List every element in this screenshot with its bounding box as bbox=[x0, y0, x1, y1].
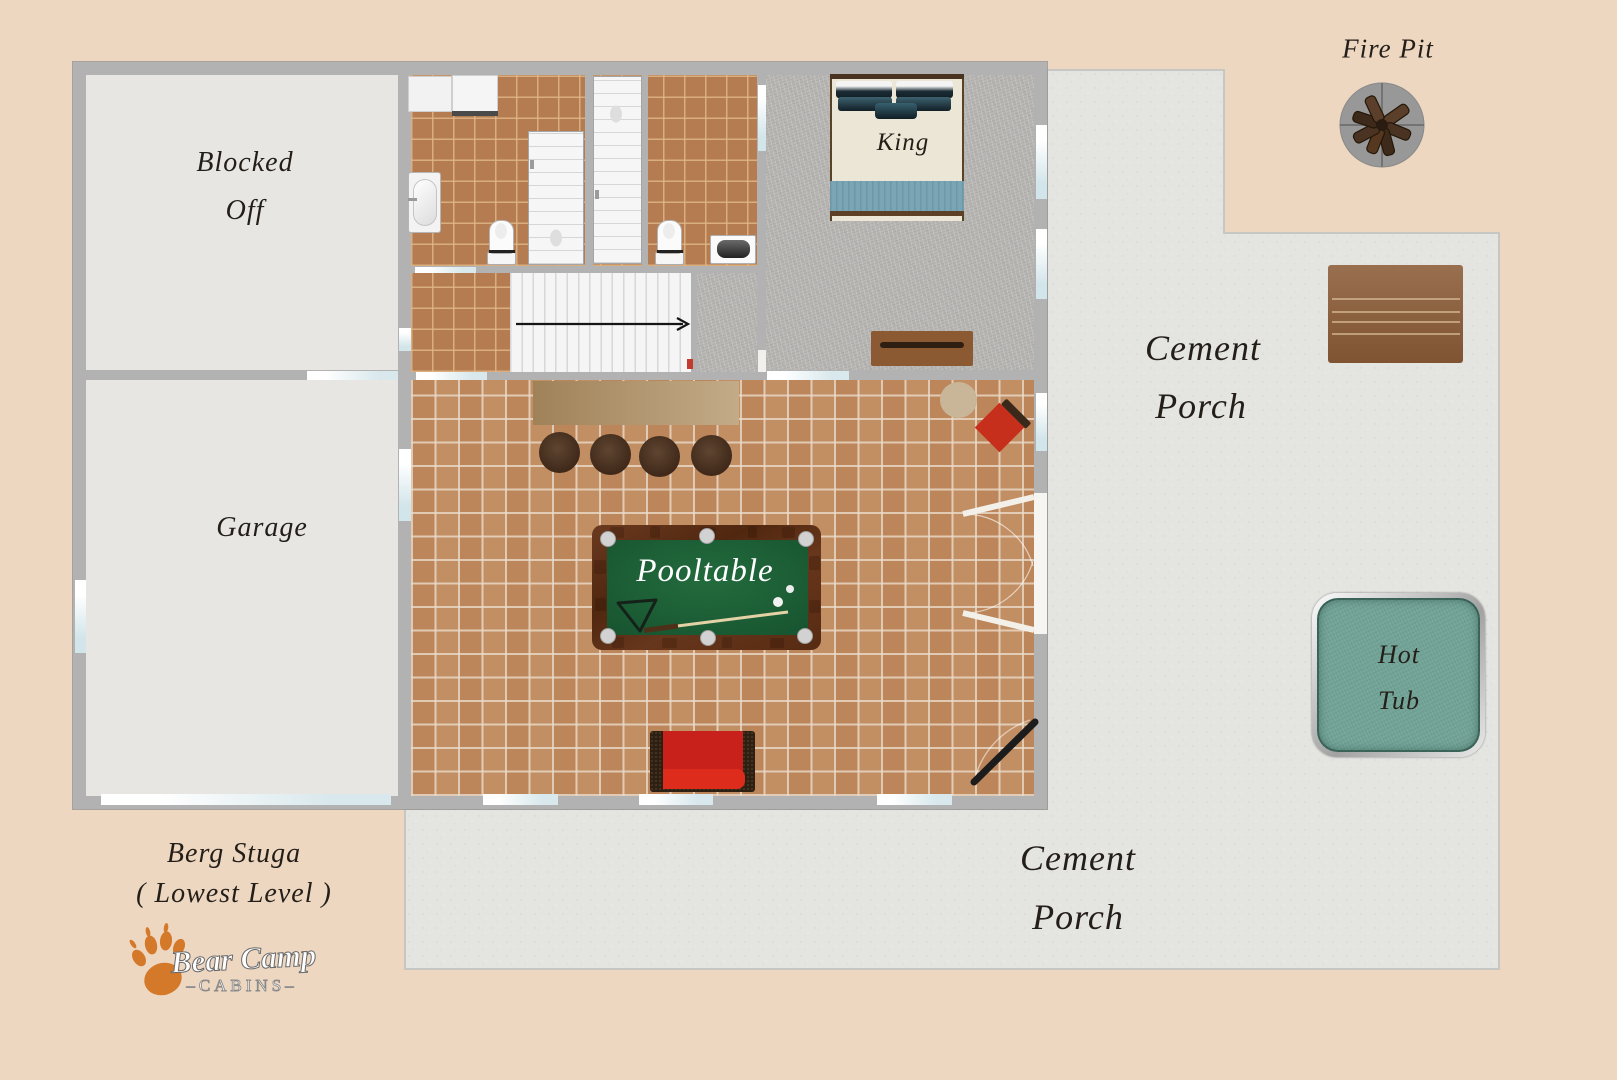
svg-text:–CABINS–: –CABINS– bbox=[185, 976, 297, 995]
svg-text:Pooltable: Pooltable bbox=[635, 553, 773, 589]
svg-text:Bear Camp: Bear Camp bbox=[169, 937, 317, 980]
